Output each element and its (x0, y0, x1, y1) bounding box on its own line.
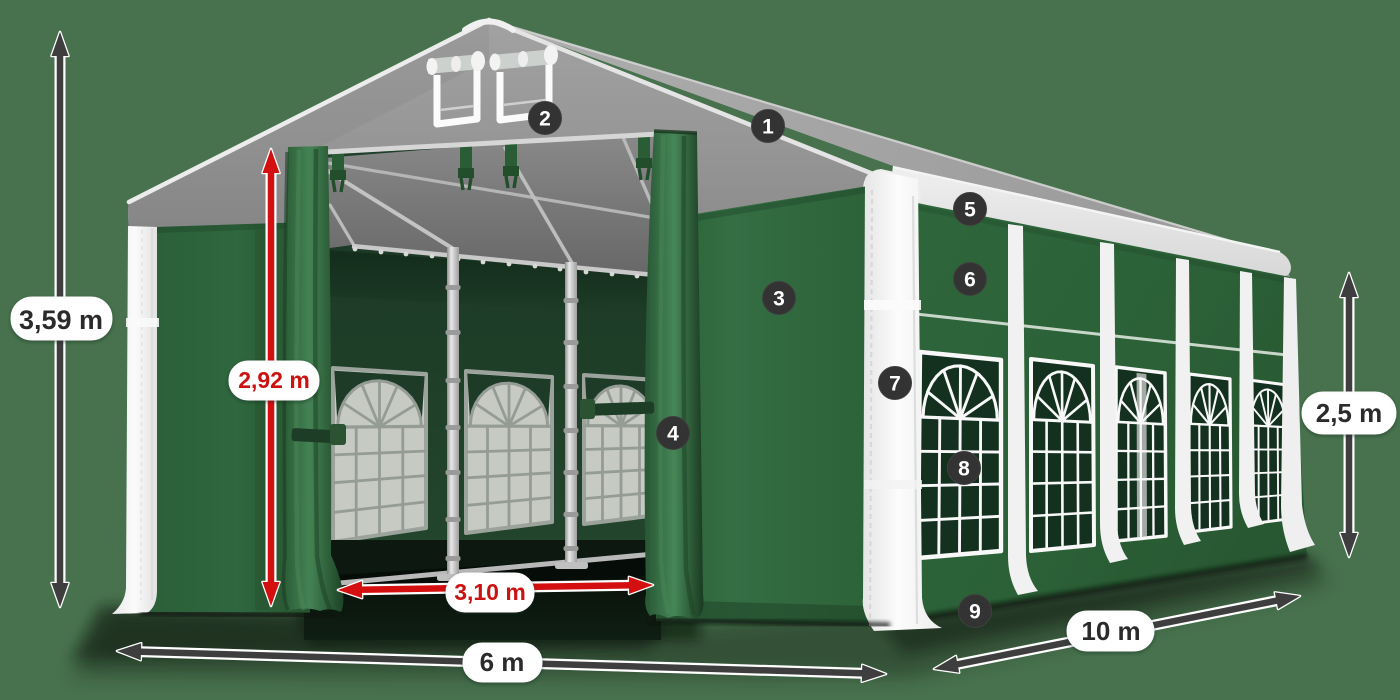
svg-text:1: 1 (762, 116, 774, 139)
svg-text:3,59 m: 3,59 m (19, 305, 103, 335)
svg-text:2: 2 (539, 108, 551, 131)
svg-text:2,5 m: 2,5 m (1316, 398, 1383, 428)
svg-text:4: 4 (667, 423, 679, 446)
svg-text:10 m: 10 m (1081, 616, 1140, 646)
svg-text:3: 3 (773, 288, 785, 311)
svg-text:6 m: 6 m (480, 647, 525, 677)
svg-text:6: 6 (964, 269, 976, 292)
svg-text:5: 5 (964, 199, 976, 222)
svg-text:2,92 m: 2,92 m (238, 367, 310, 393)
svg-text:3,10 m: 3,10 m (454, 579, 526, 605)
svg-text:7: 7 (889, 373, 901, 396)
svg-text:8: 8 (958, 458, 970, 481)
svg-text:9: 9 (969, 601, 981, 624)
